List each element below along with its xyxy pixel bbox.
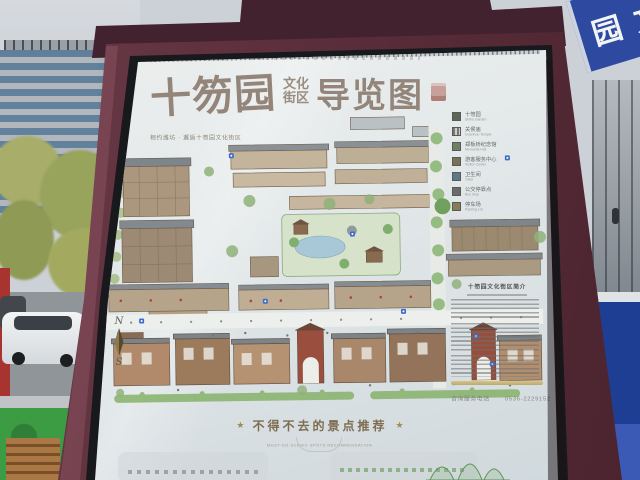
phone-row: 咨询服务电话0536-2229152 [451,388,543,406]
sign-character: 园 [586,3,628,54]
gold-divider [451,381,543,385]
intro-paragraph [451,299,539,319]
pavilion-sketch [424,444,514,480]
street-north-shops [109,280,431,311]
star-icon: ★ [396,420,404,431]
wooden-pallet [6,438,60,480]
intro-title: 十笏园文化街区简介 [464,283,530,291]
compass-south-label: S [116,357,123,368]
intro-subtitle-line [467,294,527,296]
pedestrian-figure [612,208,619,224]
phone-number: 0536-2229152 [505,395,551,401]
recommendation-headline: 不得不去的景点推荐 [252,417,387,434]
compass-north-label: N [115,316,124,327]
photo-of-guide-map-signboard: 园 文 十笏园 文化 街区 导览图 相约潍坊 · 邂逅十笏园文化街区 十笏园Sh… [0,0,640,480]
storefront-glass [592,80,640,305]
car-wheel [12,352,25,365]
north-row-buildings [228,116,439,210]
car-window [14,316,72,330]
sign-character: 文 [628,0,640,41]
phone-label: 咨询服务电话 [451,395,490,403]
compass-rose: N S [106,316,132,368]
intro-panel: 十笏园文化街区简介 咨询服务电话0536-2229152 [451,281,543,406]
attraction-card [118,452,268,480]
intro-paragraph [451,355,539,377]
card-text-lines [128,470,258,474]
compass-needle-icon [113,327,125,357]
right-mid-buildings [446,219,543,276]
star-icon: ★ [236,420,244,431]
street-name-sign: 园 文 [566,0,640,73]
shihu-garden-compound [250,213,401,277]
intro-paragraph [451,323,539,351]
car-wheel [60,354,73,367]
building-roof-railing [4,40,104,50]
